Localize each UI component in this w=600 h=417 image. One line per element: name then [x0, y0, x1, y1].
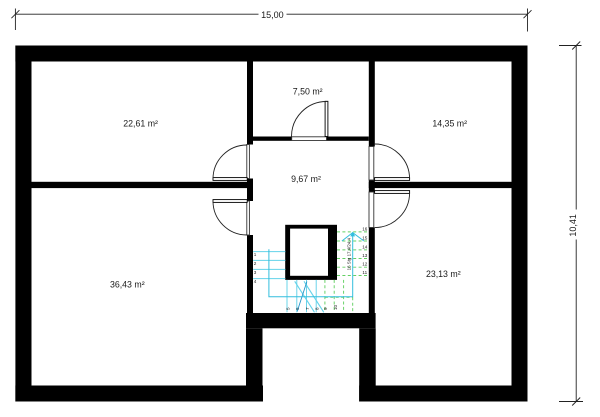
svg-text:8: 8	[315, 307, 320, 310]
svg-text:13: 13	[362, 253, 368, 258]
svg-text:15,00: 15,00	[261, 10, 284, 20]
svg-text:16 Stg 17,4/24,4: 16 Stg 17,4/24,4	[347, 238, 352, 271]
svg-text:15: 15	[362, 235, 368, 240]
svg-text:16: 16	[362, 226, 368, 231]
svg-text:2: 2	[254, 261, 257, 266]
svg-text:4: 4	[254, 279, 257, 284]
svg-text:7: 7	[305, 307, 310, 310]
svg-text:10,41: 10,41	[568, 214, 578, 237]
svg-text:36,43 m²: 36,43 m²	[110, 280, 145, 290]
svg-text:1: 1	[254, 252, 257, 257]
svg-text:9: 9	[323, 307, 328, 310]
svg-text:10: 10	[333, 304, 338, 310]
svg-text:9,67 m²: 9,67 m²	[291, 174, 321, 184]
svg-text:12: 12	[362, 262, 368, 267]
svg-text:7,50 m²: 7,50 m²	[293, 87, 323, 97]
svg-text:22,61 m²: 22,61 m²	[123, 119, 158, 129]
svg-text:5: 5	[285, 307, 290, 310]
svg-text:11: 11	[362, 270, 367, 275]
svg-text:14: 14	[362, 244, 368, 249]
svg-text:14,35 m²: 14,35 m²	[432, 118, 467, 128]
svg-text:23,13 m²: 23,13 m²	[426, 269, 461, 279]
svg-text:3: 3	[254, 270, 257, 275]
